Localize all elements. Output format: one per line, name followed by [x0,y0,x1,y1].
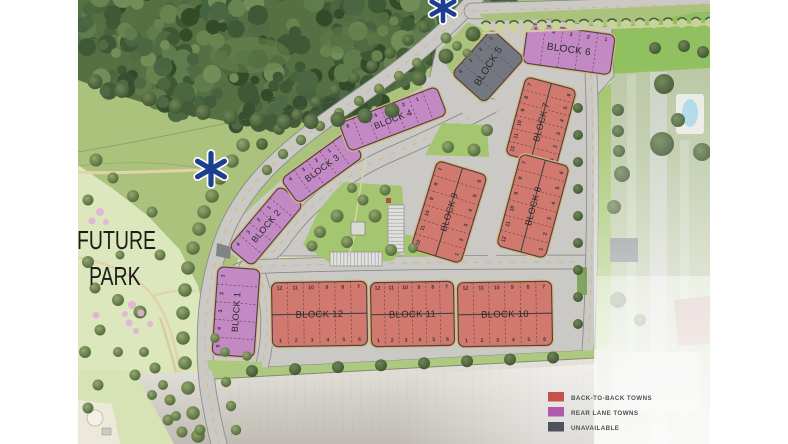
svg-text:PARK: PARK [89,261,141,290]
svg-text:UNAVAILABLE: UNAVAILABLE [571,425,619,432]
svg-text:REAR LANE TOWNS: REAR LANE TOWNS [571,410,638,417]
svg-text:BACK-TO-BACK TOWNS: BACK-TO-BACK TOWNS [571,395,652,402]
svg-text:FUTURE: FUTURE [77,225,156,254]
